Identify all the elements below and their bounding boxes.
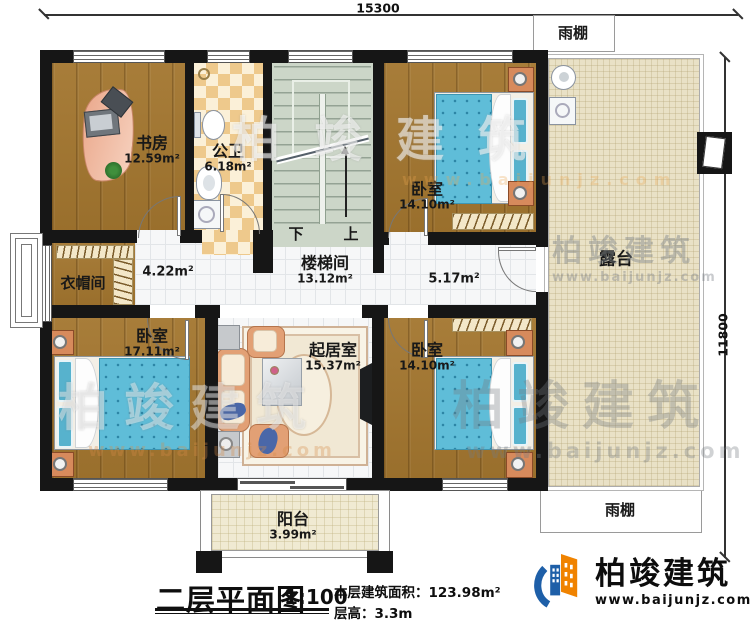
cloakroom-rail-right: [113, 259, 133, 305]
canopy-top-label: 雨棚: [558, 24, 588, 42]
balcony-label: 阳台 3.99m²: [269, 510, 316, 541]
bedroom-bl-label: 卧室 17.11m²: [124, 327, 180, 358]
brand-logo: 柏竣建筑 www.baijunjz.com: [534, 550, 750, 616]
wall: [40, 230, 137, 243]
living-label: 起居室 15.37m²: [305, 341, 361, 372]
brand-url: www.baijunjz.com: [595, 594, 750, 607]
window: [207, 50, 250, 63]
side-table-top: [215, 325, 240, 350]
title-underline: [155, 613, 329, 615]
coffee-table: [262, 358, 302, 406]
lamp: [513, 186, 527, 200]
brand-text-block: 柏竣建筑 www.baijunjz.com: [595, 559, 750, 607]
brand-name: 柏竣建筑: [595, 559, 750, 590]
terrace-label: 露台: [599, 250, 633, 269]
wall: [536, 292, 548, 491]
window: [407, 50, 513, 63]
bath-door-leaf: [220, 194, 224, 232]
stair-up-label: 上: [343, 225, 358, 243]
bed-br-nightstand: [506, 452, 533, 478]
wall: [428, 305, 548, 318]
tv: [360, 363, 372, 425]
stairwell-label: 楼梯间 13.12m²: [297, 254, 353, 285]
brand-logo-icon: [534, 550, 588, 616]
floor-area-label: 本层建筑面积：: [334, 585, 429, 601]
bed-tr-wardrobe: [452, 213, 534, 230]
bed-tr-nightstand: [508, 181, 534, 206]
balcony-post: [367, 551, 393, 573]
floor-plan: 15300 11800 雨棚 雨棚: [0, 0, 750, 625]
floor-height-line: 层高：3.3m: [334, 602, 412, 622]
lamp: [511, 457, 525, 471]
wall: [205, 318, 218, 478]
armchair-cushion: [253, 330, 277, 352]
bed-bl-mattress: [99, 358, 190, 450]
toilet-tank: [194, 112, 201, 138]
bed-tr-pillow: [512, 98, 528, 144]
side-table-lamp: [219, 437, 233, 451]
bedroom-tr-label: 卧室 14.10m²: [399, 180, 455, 211]
study-monitor-screen: [89, 114, 112, 131]
wall: [40, 50, 52, 245]
floor-height-label: 层高：: [334, 606, 375, 622]
study-label: 书房 12.59m²: [124, 134, 180, 165]
stair-down-label: 下: [288, 225, 303, 243]
floor-height-value: 3.3m: [375, 606, 413, 622]
study-door-leaf: [177, 196, 181, 236]
bed-br-blanket: [489, 358, 511, 448]
coffee-table-flowers: [270, 366, 279, 375]
floor-area-line: 本层建筑面积：123.98m²: [334, 581, 501, 601]
stair-stringer: [319, 94, 326, 224]
bath-label: 公卫 6.18m²: [204, 142, 251, 173]
bath-shower-valve: [198, 68, 210, 80]
dimension-height: 11800: [716, 313, 731, 357]
wall: [263, 62, 272, 230]
bedroom-br-label: 卧室 14.10m²: [399, 341, 455, 372]
window: [73, 478, 168, 491]
stair-arrow-shaft: [345, 153, 347, 217]
lamp: [511, 335, 525, 349]
hall-right-label: 5.17m²: [428, 269, 479, 288]
toilet-bowl: [202, 110, 225, 140]
title-underline: [155, 608, 329, 611]
dimension-width: 15300: [356, 1, 400, 16]
bed-br-pillow: [512, 362, 528, 402]
bed-br-nightstand: [506, 330, 533, 356]
hall-left-label: 4.22m²: [142, 262, 193, 281]
wall: [185, 62, 194, 230]
window: [288, 50, 353, 63]
cloakroom-rail-top: [56, 245, 134, 259]
lamp: [53, 457, 67, 471]
bed-bl-pillow: [57, 360, 73, 402]
sliding-door-leaf: [240, 481, 295, 484]
bath-sink-basin: [203, 175, 215, 191]
wall: [180, 230, 202, 243]
wall: [253, 230, 273, 273]
terrace-sink-drain: [559, 72, 569, 82]
lamp: [513, 72, 527, 86]
lamp: [53, 335, 67, 349]
wall: [195, 305, 220, 318]
bedroom-bl-door-leaf: [185, 320, 189, 360]
window: [442, 478, 508, 491]
sofa-cushion: [221, 354, 245, 386]
balcony-post: [196, 551, 222, 573]
terrace-washer-drum: [555, 103, 570, 118]
terrace-side-window-pane: [702, 136, 726, 169]
terrace-door-leaf: [498, 247, 536, 251]
window: [73, 50, 165, 63]
bed-tr-nightstand: [508, 67, 534, 92]
sliding-door-leaf: [290, 486, 344, 489]
floor-area-value: 123.98m²: [429, 585, 501, 601]
study-plant: [105, 162, 122, 179]
bed-br-pillow: [512, 406, 528, 446]
wall: [428, 232, 548, 245]
wall: [362, 305, 388, 318]
bed-bl-pillow: [57, 406, 73, 448]
bath-washer-drum: [198, 206, 215, 223]
wall: [40, 322, 52, 491]
wall: [40, 305, 150, 318]
wall: [373, 62, 384, 273]
wall: [536, 50, 548, 247]
cloakroom-label: 衣帽间: [60, 274, 105, 292]
bay-window: [10, 233, 43, 328]
wall: [372, 318, 384, 478]
canopy-bottom-label: 雨棚: [605, 501, 635, 519]
